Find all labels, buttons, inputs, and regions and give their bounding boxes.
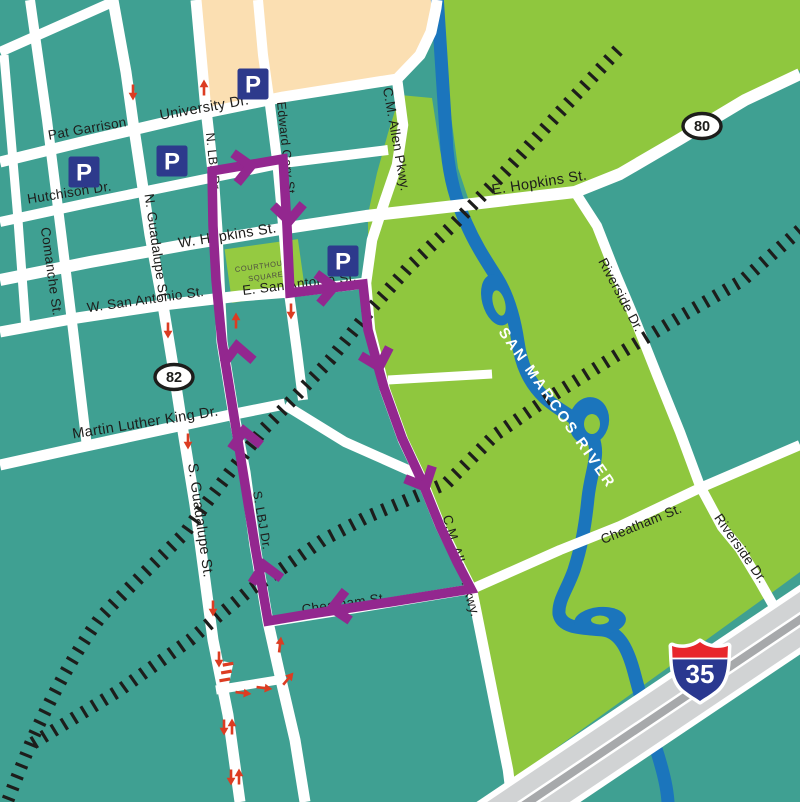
parking-icon-letter: P (164, 149, 180, 176)
highway-82-shield: 82 (155, 365, 193, 390)
parking-icon-letter: P (335, 249, 351, 276)
parking-icon-letter: P (245, 72, 261, 99)
highway-80-shield: 80 (683, 114, 721, 139)
parking-icon: P (328, 246, 359, 277)
map-canvas: COURTHOUSE SQUARE Pat Garrison Un (0, 0, 800, 802)
parking-icon: P (157, 146, 188, 177)
parking-icon: P (69, 157, 100, 188)
street-park-road (388, 374, 492, 380)
parking-icon-letter: P (76, 160, 92, 187)
interstate-shield-number: 35 (686, 659, 715, 689)
highway-82-shield-number: 82 (166, 370, 182, 386)
shuttle-route-map: COURTHOUSE SQUARE Pat Garrison Un (0, 0, 800, 802)
river-island-middle (584, 414, 600, 434)
parking-icon: P (238, 69, 269, 100)
highway-80-shield-number: 80 (694, 119, 710, 135)
river-island-lower (591, 616, 609, 625)
